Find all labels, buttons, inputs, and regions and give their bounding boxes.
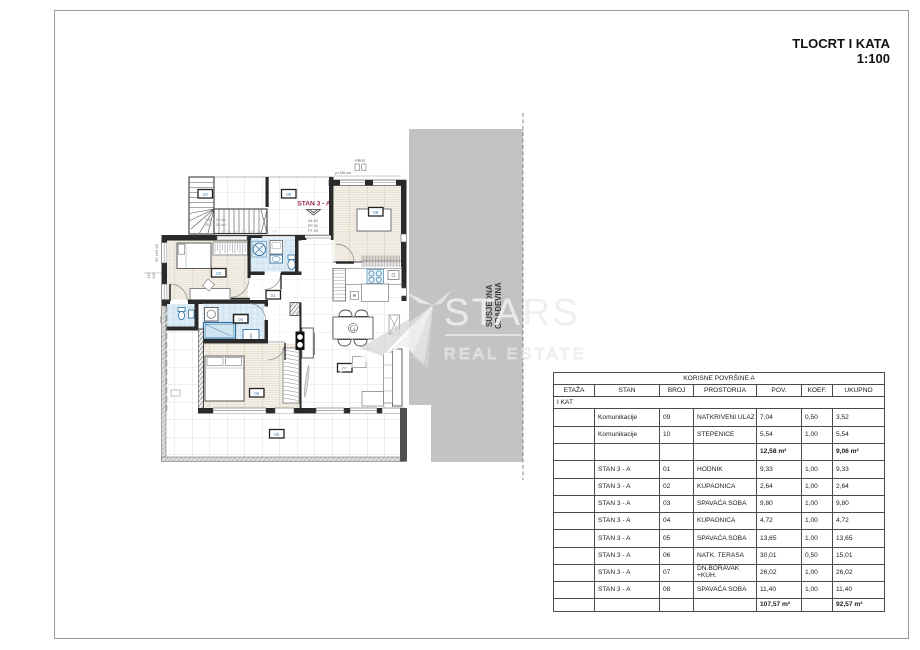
svg-text:PP 02: PP 02	[308, 224, 318, 228]
svg-text:05: 05	[254, 391, 260, 396]
svg-text:01: 01	[271, 293, 277, 298]
svg-text:03: 03	[216, 271, 222, 276]
svg-text:PT 03: PT 03	[308, 229, 318, 233]
svg-text:30 30 30 30 30 30 30 30: 30 30 30 30 30 30 30 30	[218, 230, 278, 234]
svg-text:30,0 x 30 cm: 30,0 x 30 cm	[205, 223, 226, 227]
svg-text:09: 09	[286, 192, 292, 197]
svg-text:06: 06	[274, 432, 280, 437]
svg-text:04-02: 04-02	[308, 219, 318, 223]
svg-text:04: 04	[238, 317, 244, 322]
svg-text:130: 130	[151, 272, 156, 279]
svg-text:7,50 x 20 cm: 7,50 x 20 cm	[205, 218, 226, 222]
svg-text:08: 08	[373, 210, 379, 215]
svg-text:90 160 90: 90 160 90	[154, 243, 159, 262]
svg-text:p=130 cm: p=130 cm	[335, 171, 351, 175]
svg-text:10: 10	[203, 192, 209, 197]
svg-text:STAN 3 - A: STAN 3 - A	[297, 201, 331, 208]
svg-text:PR02: PR02	[355, 158, 366, 163]
